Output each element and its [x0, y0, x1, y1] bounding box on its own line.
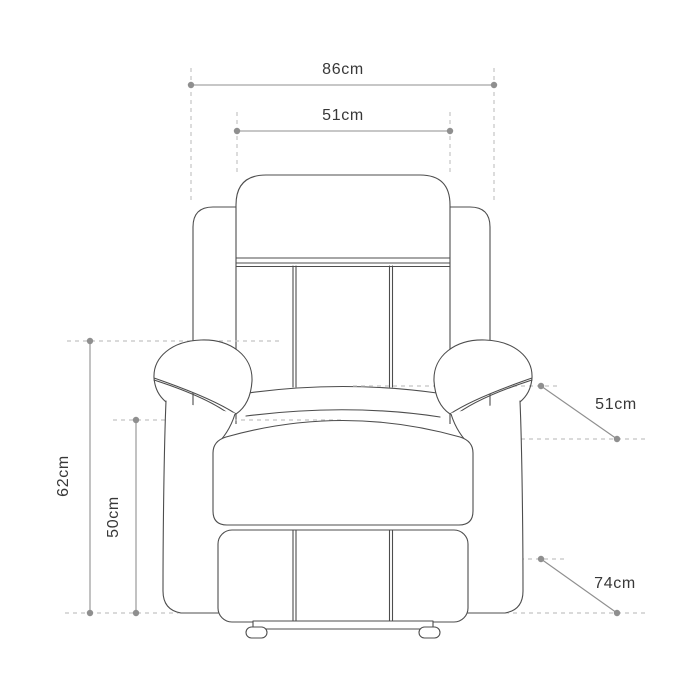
dimension-label-backrest-width: 51cm: [322, 107, 364, 124]
dot: [538, 383, 544, 389]
left-foot: [246, 627, 267, 638]
dimension-label-left-outer-height: 62cm: [55, 455, 72, 497]
dimension-label-right-upper: 51cm: [595, 396, 637, 413]
dot: [133, 417, 139, 423]
base-bar: [253, 621, 433, 629]
dot: [447, 128, 453, 134]
dot: [614, 436, 620, 442]
dimension-label-overall-width: 86cm: [322, 61, 364, 78]
armchair-diagram-svg: 86cm 51cm 62cm 50cm 51cm 74cm: [0, 0, 700, 700]
seat-cushion: [213, 421, 473, 526]
dot: [538, 556, 544, 562]
dot: [133, 610, 139, 616]
dot: [188, 82, 194, 88]
dimension-diagram: 86cm 51cm 62cm 50cm 51cm 74cm: [0, 0, 700, 700]
dot: [87, 610, 93, 616]
dot: [614, 610, 620, 616]
dimension-label-right-lower: 74cm: [594, 575, 636, 592]
dimension-label-left-inner-height: 50cm: [105, 496, 122, 538]
dot: [491, 82, 497, 88]
footrest-panel: [218, 530, 468, 622]
dot: [234, 128, 240, 134]
dot: [87, 338, 93, 344]
right-foot: [419, 627, 440, 638]
